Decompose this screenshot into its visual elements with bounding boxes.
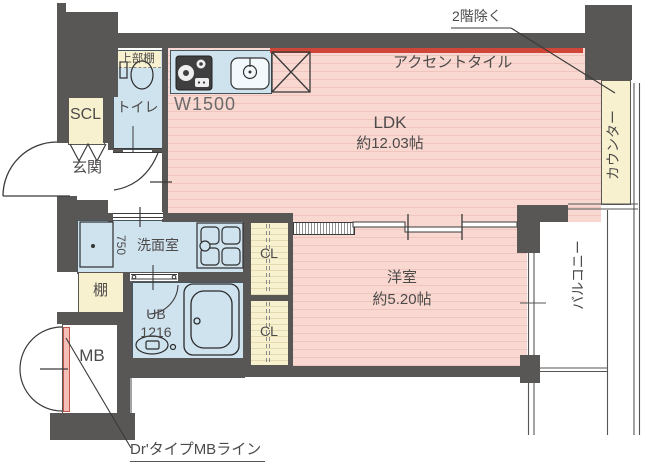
floor-plan: 2階除く アクセントタイル 上部棚 トイレ W1500 LDK 約12.03帖 …	[0, 0, 647, 465]
western-room-size-label: 約5.20帖	[312, 292, 492, 309]
note-second-floor: 2階除く	[452, 9, 502, 24]
entrance-door-icon	[3, 142, 70, 196]
washroom-label: 洗面室	[137, 238, 179, 253]
sliding-door-pocket	[293, 222, 355, 235]
mb-box	[62, 324, 119, 415]
bath-label: UB	[132, 307, 180, 322]
kitchen-width-label: W1500	[174, 95, 236, 115]
closet-upper-label: CL	[250, 246, 288, 261]
ldk-size-label: 約12.03帖	[300, 136, 480, 153]
balcony-label: バルコニー	[566, 220, 592, 330]
mb-label: MB	[68, 347, 116, 366]
vanity-width-label: 750	[113, 227, 127, 263]
shelf-label: 棚	[78, 283, 123, 300]
mb-line-strip	[63, 327, 70, 412]
accent-tile-label: アクセントタイル	[393, 55, 512, 72]
upper-shelf-label: 上部棚	[113, 53, 162, 66]
scl-label: SCL	[68, 106, 103, 124]
ldk-label: LDK	[300, 114, 480, 133]
kitchen-counter-area	[170, 50, 272, 94]
bath-size-label: 1216	[130, 325, 182, 340]
counter-label: カウンター	[601, 105, 627, 185]
mb-doors-icon	[20, 327, 68, 411]
entrance-label: 玄関	[62, 160, 112, 177]
mb-line-label: Dr'タイプMBライン	[130, 442, 265, 462]
western-room-label: 洋室	[312, 270, 492, 287]
closet-lower-label: CL	[250, 324, 288, 339]
toilet-label: トイレ	[113, 100, 162, 115]
